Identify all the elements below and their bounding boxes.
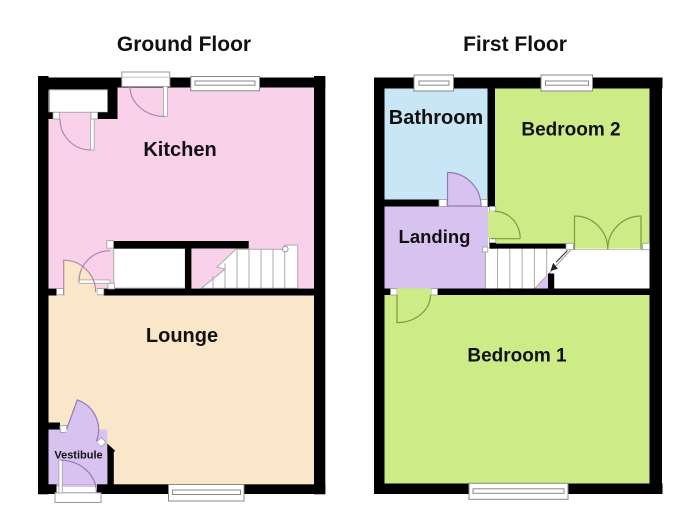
svg-text:Bedroom 1: Bedroom 1 — [467, 346, 567, 367]
svg-text:Bedroom 2: Bedroom 2 — [521, 120, 620, 141]
svg-text:First Floor: First Floor — [463, 33, 567, 56]
svg-text:Landing: Landing — [399, 226, 471, 247]
svg-text:Lounge: Lounge — [146, 325, 218, 347]
svg-text:Bathroom: Bathroom — [389, 107, 483, 129]
svg-text:Kitchen: Kitchen — [143, 139, 216, 161]
svg-text:Ground Floor: Ground Floor — [117, 33, 251, 56]
svg-text:Vestibule: Vestibule — [54, 450, 102, 462]
